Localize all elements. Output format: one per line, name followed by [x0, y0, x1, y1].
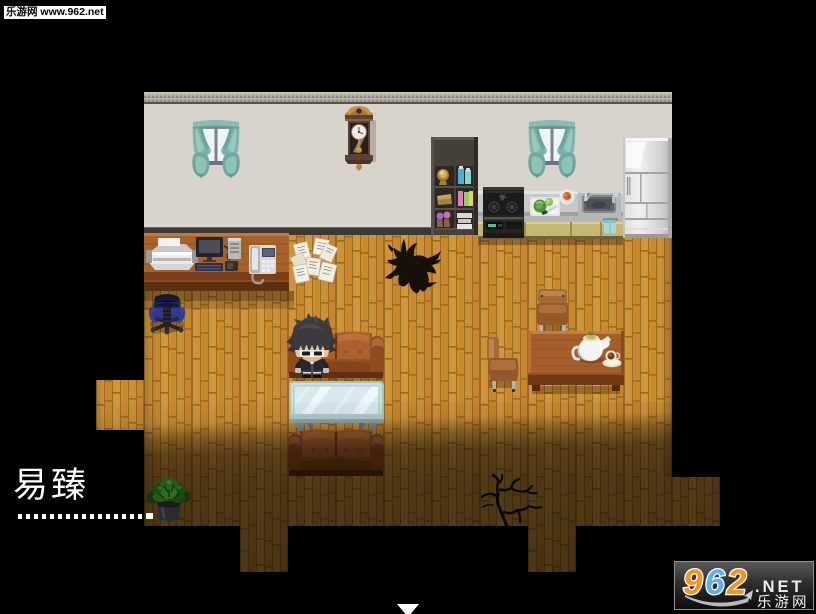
svg-text:乐游网: 乐游网 — [757, 594, 810, 610]
svg-text:2: 2 — [726, 563, 747, 602]
svg-text:.NET: .NET — [755, 578, 805, 596]
svg-text:6: 6 — [705, 563, 725, 602]
